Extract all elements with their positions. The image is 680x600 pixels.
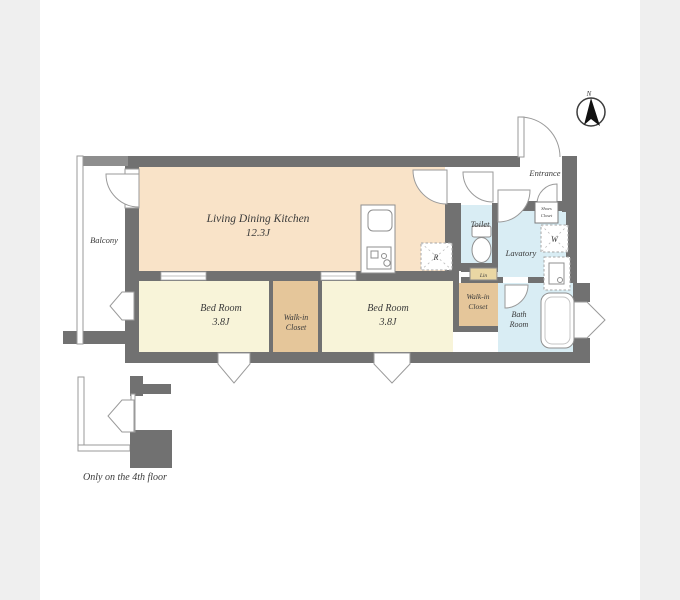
shoes-closet-label-line1: Shoes bbox=[541, 206, 552, 211]
stove-burner-square bbox=[371, 251, 378, 258]
detail-rail-horizontal bbox=[78, 445, 130, 451]
fourth-floor-detail: Only on the 4th floor bbox=[78, 376, 172, 483]
north-compass-icon: N bbox=[577, 90, 605, 126]
ldk-size-label: 12.3J bbox=[246, 227, 271, 239]
toilet-door-arc bbox=[463, 172, 493, 202]
wall-wic1-right bbox=[318, 281, 322, 352]
fourth-floor-note: Only on the 4th floor bbox=[83, 472, 167, 483]
wall-balcony-top bbox=[77, 156, 128, 166]
bedroom2-label: Bed Room bbox=[367, 303, 408, 314]
balcony-label: Balcony bbox=[90, 235, 118, 245]
wall-bedroom2-wic2 bbox=[453, 271, 459, 332]
detail-rail-vertical bbox=[78, 377, 84, 451]
floorplan-drawing: N Only on the 4th floor Living Dining Ki… bbox=[0, 0, 680, 600]
detail-wall-step-1 bbox=[130, 376, 143, 396]
wic2-label-line2: Closet bbox=[468, 302, 488, 311]
lavatory-label: Lavatory bbox=[505, 248, 537, 258]
window-bedroom2-bottom bbox=[374, 353, 410, 383]
wic2-label-line1: Walk-in bbox=[466, 292, 489, 301]
ldk-label: Living Dining Kitchen bbox=[206, 213, 310, 225]
window-bedroom1-left bbox=[110, 292, 134, 320]
wall-wic1-left bbox=[269, 281, 273, 352]
window-bedroom1-bottom bbox=[218, 353, 250, 383]
refrigerator-label: R bbox=[433, 253, 439, 262]
detail-wall-step-2 bbox=[143, 384, 171, 394]
front-door-leaf bbox=[518, 117, 524, 157]
wall-top-hall bbox=[459, 156, 520, 167]
shoes-closet-label-line2: Closet bbox=[541, 213, 553, 218]
wall-balcony-bottom bbox=[63, 331, 125, 344]
room-bedroom-1 bbox=[139, 281, 269, 352]
bathroom-label-line2: Room bbox=[509, 320, 529, 329]
wic1-label-line2: Closet bbox=[286, 323, 307, 332]
floorplan-page: N Only on the 4th floor Living Dining Ki… bbox=[0, 0, 680, 600]
bedroom1-size-label: 3.8J bbox=[212, 317, 231, 328]
balcony-door-arc bbox=[106, 174, 139, 207]
toilet-bowl bbox=[472, 238, 491, 263]
wall-top bbox=[125, 156, 459, 167]
wic1-label-line1: Walk-in bbox=[284, 313, 309, 322]
bath-door-opening bbox=[503, 277, 528, 283]
balcony-rail bbox=[77, 156, 83, 344]
entrance-label: Entrance bbox=[528, 168, 560, 178]
bedroom1-label: Bed Room bbox=[200, 303, 241, 314]
detail-window bbox=[108, 400, 134, 432]
water-heater-dial bbox=[558, 278, 563, 283]
wall-right-bath-lower bbox=[573, 338, 590, 363]
kitchen-sink bbox=[368, 210, 392, 231]
bedroom2-size-label: 3.8J bbox=[379, 317, 398, 328]
compass-north-label: N bbox=[586, 90, 592, 98]
stove-burner-2 bbox=[384, 260, 390, 266]
kitchen bbox=[361, 205, 395, 273]
linen-label: Lin bbox=[479, 273, 488, 279]
wall-bottom bbox=[125, 352, 590, 363]
toilet-label: Toilet bbox=[470, 219, 490, 229]
detail-wall-block bbox=[130, 430, 172, 468]
wall-right-bath-upper bbox=[573, 283, 590, 302]
north-needle-icon bbox=[584, 98, 600, 126]
wall-wic2-bottom bbox=[453, 326, 498, 332]
front-door-arc bbox=[520, 117, 560, 157]
wall-toilet-lavatory bbox=[492, 203, 498, 271]
bathroom-label-line1: Bath bbox=[511, 310, 526, 319]
window-bathroom-right bbox=[573, 302, 605, 338]
entrance-inner-door-arc bbox=[537, 184, 557, 204]
stove-burner-1 bbox=[382, 254, 387, 259]
